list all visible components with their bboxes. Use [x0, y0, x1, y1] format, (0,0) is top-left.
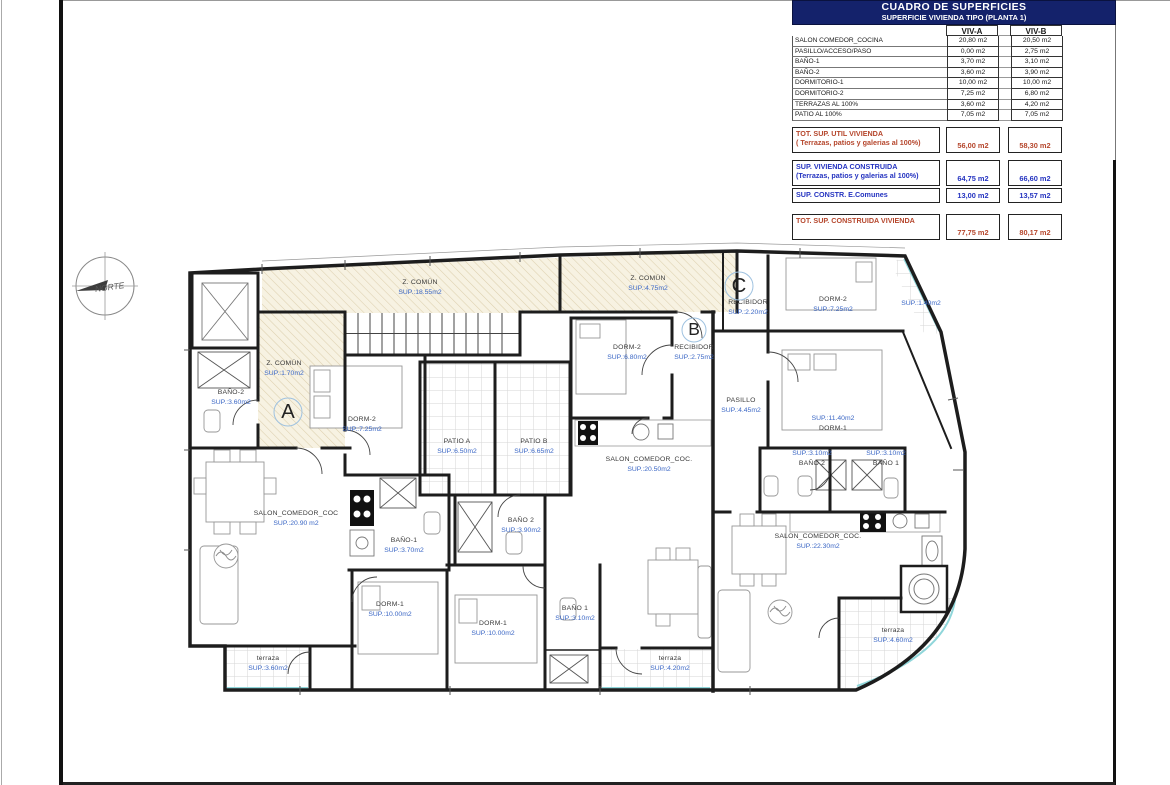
room-name-label: DORM-2	[613, 344, 641, 351]
room-area-label: SUP.:4.60m2	[873, 637, 913, 644]
room-name-label: BAÑO 1	[873, 458, 899, 467]
room-name-label: DORM-2	[819, 296, 847, 303]
room-area-label: SUP.:3.60m2	[211, 399, 251, 406]
room-area-label: SUP.:1.40m2	[901, 300, 941, 307]
room-area-label: SUP.:3.10m2	[555, 615, 595, 622]
room-area-label: SUP.:6.50m2	[437, 448, 477, 455]
room-name-label: DORM-1	[376, 601, 404, 608]
room-area-label: SUP.:6.65m2	[514, 448, 554, 455]
room-area-label: SUP.:20.90 m2	[273, 520, 318, 527]
room-area-label: SUP.:18.55m2	[398, 289, 442, 296]
room-area-label: SUP.:3.10m2	[792, 450, 832, 457]
unit-marker-letter: B	[688, 319, 700, 339]
drawing-sheet: CUADRO DE SUPERFICIES SUPERFICIE VIVIEND…	[0, 0, 1170, 785]
room-name-label: terraza	[659, 655, 682, 662]
room-name-label: PASILLO	[726, 397, 755, 404]
room-area-label: SUP.:3.60m2	[248, 665, 288, 672]
room-area-label: SUP.:1.70m2	[264, 370, 304, 377]
room-area-label: SUP.:6.80m2	[607, 354, 647, 361]
room-name-label: DORM-2	[348, 416, 376, 423]
room-area-label: SUP.:11.40m2	[812, 415, 855, 422]
room-area-label: SUP.:10.00m2	[368, 611, 412, 618]
room-name-label: SALON_COMEDOR_COC.	[775, 533, 862, 540]
room-name-label: DORM-1	[479, 620, 507, 627]
room-area-label: SUP.:7.25m2	[813, 306, 853, 313]
room-name-label: SALON_COMEDOR_COC.	[606, 456, 693, 463]
room-area-label: SUP.:3.10m2	[866, 450, 906, 457]
room-name-label: PATIO B	[520, 438, 547, 445]
room-name-label: Z. COMÚN	[630, 273, 665, 282]
room-area-label: SUP.:10.00m2	[471, 630, 515, 637]
compass: NORTE	[72, 252, 138, 320]
room-name-label: Z. COMÚN	[402, 277, 437, 286]
room-area-label: SUP.:22.30m2	[796, 543, 840, 550]
room-name-label: Z. COMÚN	[266, 358, 301, 367]
room-name-label: terraza	[882, 627, 905, 634]
unit-marker-letter: C	[732, 275, 747, 297]
room-area-label: SUP.:4.45m2	[721, 407, 761, 414]
room-name-label: DORM-1	[819, 425, 847, 432]
room-name-label: BAÑO 2	[508, 515, 534, 524]
room-area-label: SUP.:4.20m2	[650, 665, 690, 672]
room-name-label: PATIO A	[444, 438, 471, 445]
room-name-label: BAÑO 2	[799, 458, 825, 467]
floor-plan: NORTE Z. COMÚNSUP.:18.55m2Z. COMÚNSUP.:4…	[0, 0, 1170, 785]
unit-marker-letter: A	[281, 401, 295, 423]
room-area-label: SUP.:20.50m2	[627, 466, 671, 473]
room-area-label: SUP.:3.70m2	[384, 547, 424, 554]
compass-label: NORTE	[94, 280, 125, 294]
room-name-label: RECIBIDOR	[674, 344, 714, 351]
room-area-label: SUP.:2.20m2	[728, 309, 768, 316]
room-area-label: SUP.:3.90m2	[501, 527, 541, 534]
room-area-label: SUP.:4.75m2	[628, 285, 668, 292]
room-name-label: SALON_COMEDOR_COC	[254, 510, 339, 517]
room-area-label: SUP.:7.25m2	[342, 426, 382, 433]
room-name-label: BAÑO-2	[218, 387, 245, 396]
room-area-label: SUP.:2.75m2	[674, 354, 714, 361]
room-name-label: BAÑO-1	[391, 535, 418, 544]
staircase	[346, 313, 519, 354]
room-name-label: BAÑO 1	[562, 603, 588, 612]
room-name-label: RECIBIDOR	[728, 299, 768, 306]
room-name-label: terraza	[257, 655, 280, 662]
